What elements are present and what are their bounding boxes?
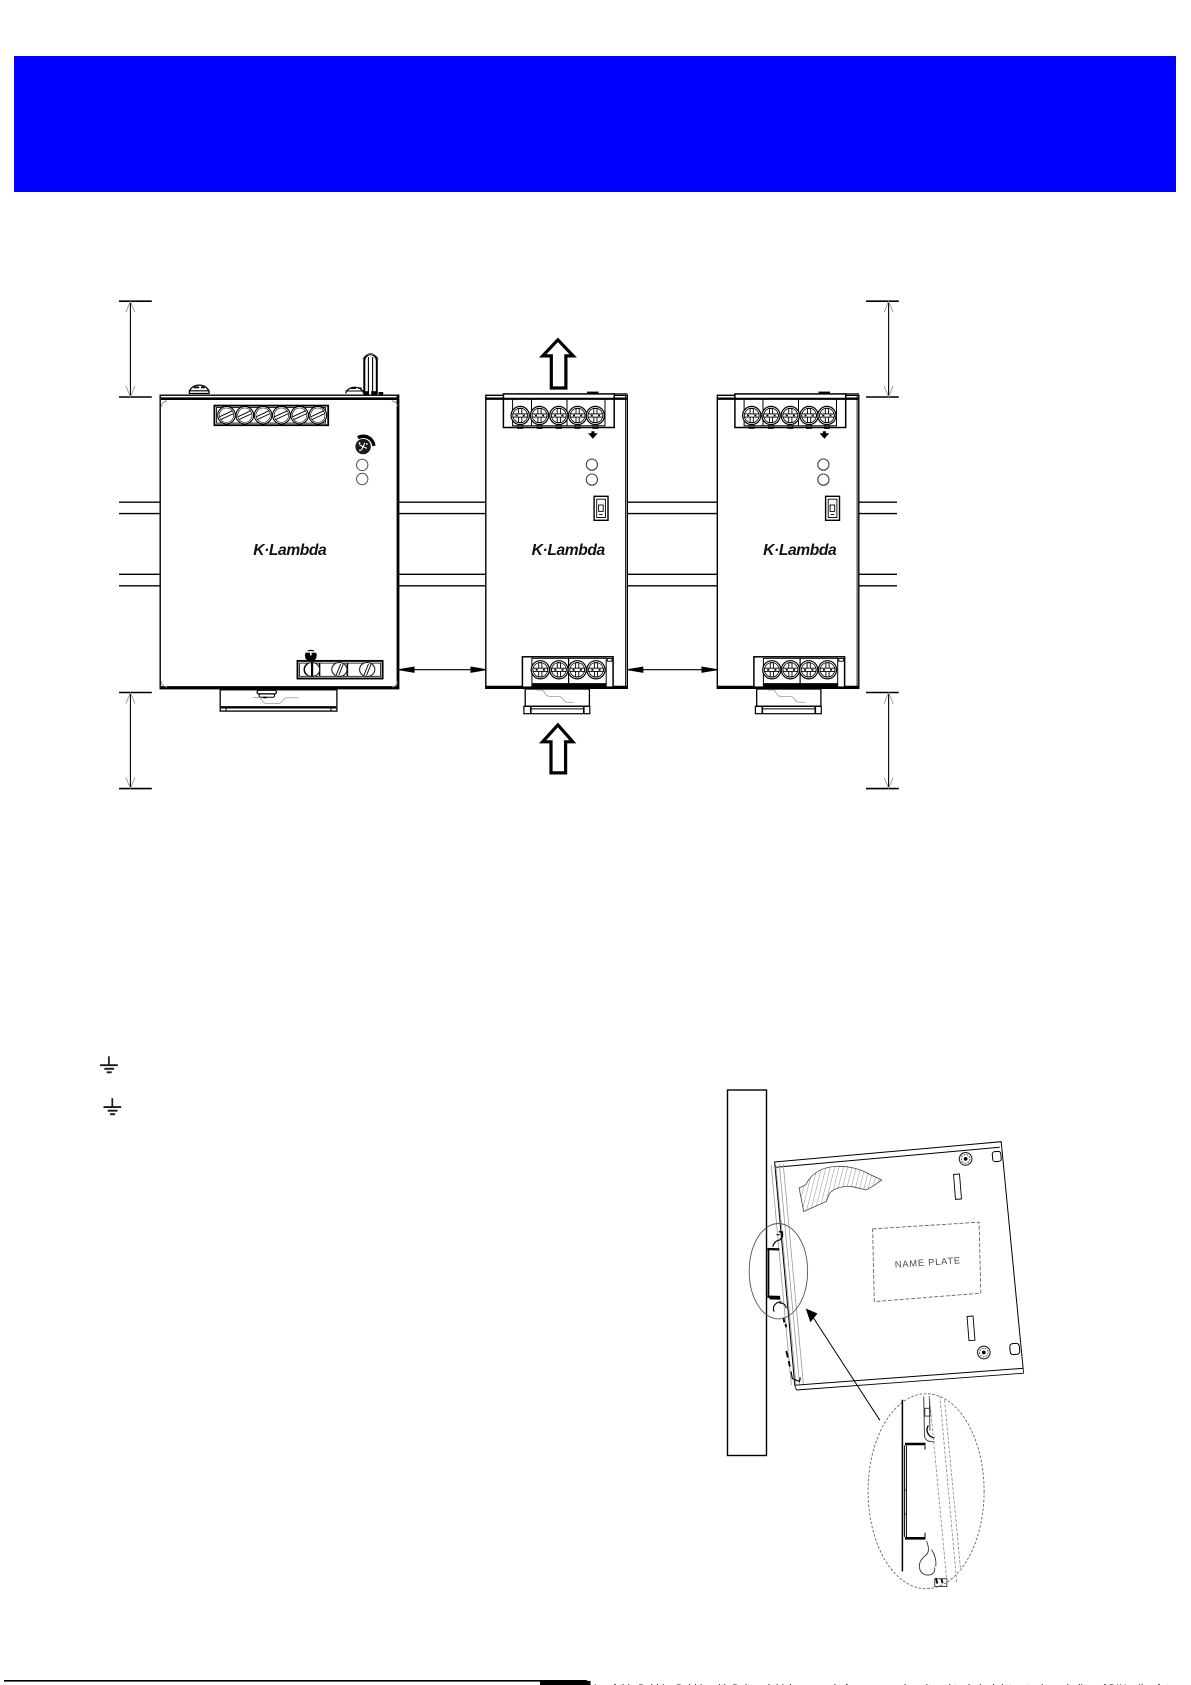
svg-text:K·Lambda: K·Lambda (532, 542, 606, 559)
svg-text:K·Lambda: K·Lambda (253, 542, 327, 559)
